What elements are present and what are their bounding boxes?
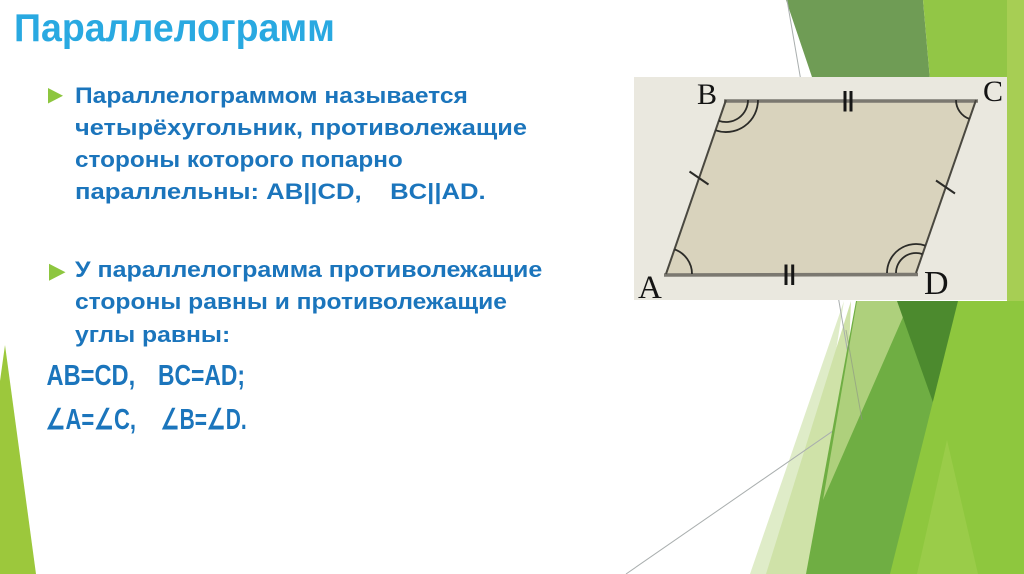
svg-text:У параллелограмма противолежащ: У параллелограмма противолежащие <box>75 257 542 281</box>
svg-text:стороны равны и противолежащие: стороны равны и противолежащие <box>75 289 507 314</box>
svg-text:D: D <box>924 265 949 302</box>
svg-text:четырёхугольник, противолежащи: четырёхугольник, противолежащие <box>75 116 527 140</box>
svg-text:B: B <box>697 78 717 111</box>
svg-text:стороны которого попарно: стороны которого попарно <box>75 147 403 172</box>
svg-text:параллельны: AB||CD, BC||AD: параллельны: AB||CD, BC||AD. <box>75 180 486 205</box>
svg-text:∠A=∠C,: ∠A=∠C, <box>46 404 136 435</box>
svg-text:углы равны:: углы равны: <box>75 322 230 346</box>
svg-text:AB=CD,: AB=CD, <box>47 359 136 392</box>
svg-text:Параллелограммом называется: Параллелограммом называется <box>75 83 468 108</box>
svg-text:Параллелограмм: Параллелограмм <box>14 8 335 51</box>
svg-text:A: A <box>638 270 662 306</box>
svg-text:C: C <box>983 75 1003 108</box>
svg-text:∠B=∠D.: ∠B=∠D. <box>161 404 247 436</box>
svg-text:BC=AD;: BC=AD; <box>158 361 245 392</box>
